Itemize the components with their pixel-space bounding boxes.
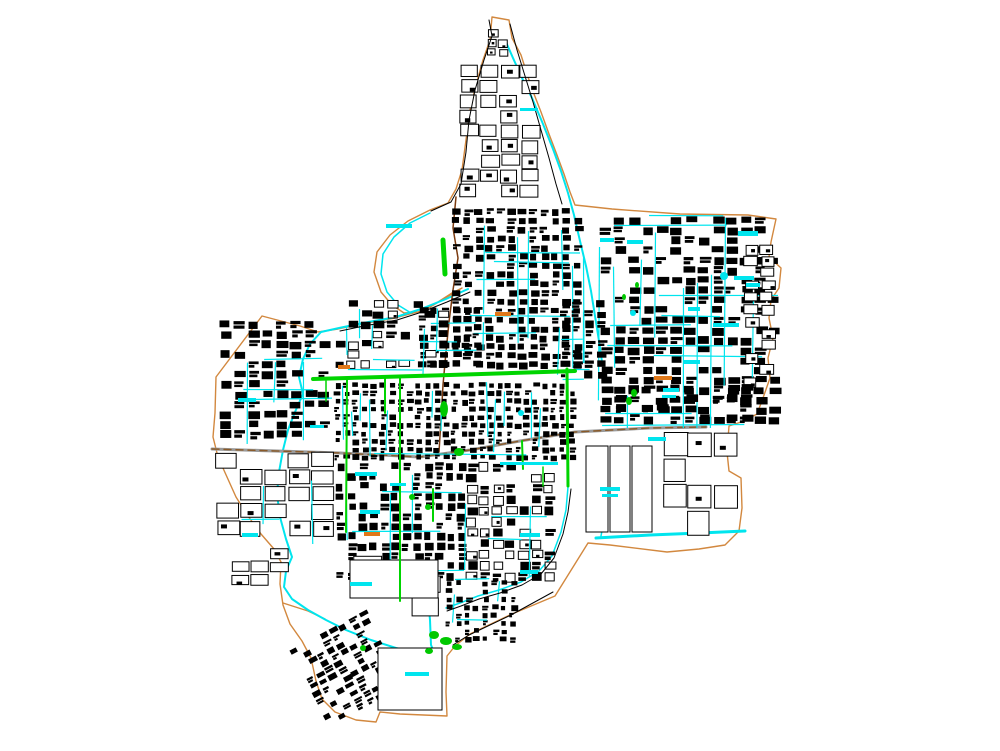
city-block (416, 390, 422, 395)
city-block (403, 514, 411, 517)
water-line (432, 391, 433, 418)
city-block (485, 245, 492, 252)
city-block (430, 337, 434, 339)
city-block (575, 290, 582, 295)
city-block (323, 713, 331, 721)
city-block (529, 361, 538, 367)
label-smear-orange (338, 365, 350, 369)
city-block (417, 408, 424, 411)
city-block (493, 574, 501, 577)
parcel-building (242, 477, 248, 481)
city-block (426, 423, 431, 429)
city-block (336, 512, 343, 515)
water-line (610, 325, 691, 326)
city-block (464, 605, 470, 610)
label-smear-cyan (713, 323, 739, 327)
city-block (250, 436, 257, 439)
city-block (563, 281, 569, 287)
city-block (510, 637, 516, 639)
city-block (370, 661, 377, 666)
city-block (698, 336, 709, 344)
city-parcel (482, 155, 500, 167)
city-block (277, 390, 288, 398)
city-block (468, 561, 477, 570)
city-block (628, 337, 639, 344)
water-line (539, 408, 541, 447)
city-block (380, 440, 385, 445)
city-block (391, 556, 397, 559)
city-block (454, 280, 461, 282)
city-block (349, 504, 356, 510)
city-block (452, 457, 456, 459)
city-map (0, 0, 1000, 751)
parcel-building (502, 45, 505, 48)
city-block (387, 325, 395, 328)
city-block (471, 454, 477, 459)
city-block (643, 246, 652, 249)
large-parcel (632, 446, 652, 532)
city-block (446, 463, 453, 470)
city-block (489, 422, 493, 428)
city-block (487, 212, 491, 214)
parcel-building (766, 371, 771, 374)
city-block (292, 352, 301, 359)
city-block (352, 440, 359, 446)
city-block (600, 416, 611, 422)
city-block (518, 209, 527, 214)
city-parcel (522, 169, 538, 180)
city-block (465, 621, 470, 625)
city-block (574, 245, 582, 247)
city-block (439, 320, 449, 327)
label-smear-cyan (738, 231, 758, 236)
city-block (444, 440, 451, 445)
city-block (600, 406, 610, 412)
city-block (446, 588, 453, 593)
city-block (289, 647, 297, 654)
city-block (475, 290, 482, 296)
city-block (598, 344, 604, 346)
city-block (496, 309, 502, 312)
city-block (435, 399, 440, 403)
city-block (686, 394, 698, 402)
parcel-building (510, 188, 515, 192)
city-block (616, 246, 627, 254)
city-block (630, 331, 637, 334)
city-parcel (492, 507, 501, 514)
city-block (644, 386, 655, 389)
city-block (553, 271, 559, 277)
city-block (545, 501, 552, 504)
city-parcel (412, 598, 438, 616)
city-block (643, 227, 652, 235)
city-block (550, 399, 557, 401)
city-block (249, 421, 258, 427)
city-block (469, 402, 474, 404)
city-block (407, 443, 413, 445)
city-block (658, 277, 670, 284)
city-block (671, 217, 681, 224)
city-parcel (481, 65, 498, 77)
city-parcel (664, 484, 687, 507)
city-block (474, 352, 482, 358)
city-block (276, 326, 281, 329)
city-block (629, 267, 640, 273)
city-parcel (714, 433, 737, 456)
city-block (391, 493, 398, 500)
city-block (249, 371, 259, 374)
city-block (699, 301, 707, 304)
city-block (249, 380, 260, 387)
city-block (264, 411, 275, 418)
city-block (349, 321, 358, 328)
city-block (656, 261, 662, 264)
city-block (562, 321, 570, 329)
city-block (502, 597, 506, 602)
city-block (461, 390, 467, 395)
city-block (487, 391, 494, 396)
city-block (380, 504, 389, 507)
city-block (615, 241, 623, 244)
city-block (643, 250, 648, 253)
city-block (700, 257, 712, 260)
city-block (643, 338, 654, 345)
city-block (553, 354, 561, 359)
city-block (220, 412, 231, 420)
city-parcel (232, 562, 249, 571)
city-block (249, 331, 260, 338)
city-block (519, 218, 526, 224)
city-parcel (312, 471, 334, 484)
city-block (714, 227, 726, 234)
city-block (290, 421, 302, 428)
city-block (585, 352, 592, 355)
city-block (714, 290, 723, 293)
city-block (453, 306, 460, 312)
city-block (479, 406, 486, 410)
city-block (335, 414, 340, 417)
city-block (234, 371, 245, 377)
city-block (403, 524, 411, 531)
city-block (541, 327, 548, 333)
city-block (435, 426, 440, 428)
park-area (454, 448, 464, 456)
city-block (458, 527, 462, 530)
city-block (643, 356, 654, 363)
city-block (323, 686, 330, 691)
city-block (360, 482, 368, 488)
city-block (437, 543, 445, 550)
city-block (220, 430, 231, 438)
city-parcel (374, 301, 383, 308)
city-block (770, 377, 780, 384)
city-parcel (468, 495, 477, 503)
city-block (446, 517, 452, 520)
city-block (574, 249, 579, 251)
city-block (455, 638, 460, 640)
city-block (457, 503, 465, 509)
city-block (629, 357, 640, 360)
city-block (473, 333, 479, 335)
park-area (425, 504, 431, 510)
city-parcel (531, 540, 540, 549)
city-block (656, 326, 668, 329)
city-block (561, 374, 565, 377)
city-parcel (373, 331, 382, 337)
city-parcel (265, 487, 285, 501)
city-block (437, 533, 445, 541)
city-block (319, 678, 327, 685)
city-block (234, 385, 242, 387)
city-block (362, 384, 368, 388)
city-block (435, 493, 442, 499)
city-block (360, 467, 368, 469)
city-block (540, 300, 548, 305)
city-block (478, 416, 485, 420)
city-block (509, 258, 514, 261)
city-block (336, 438, 340, 442)
city-block (545, 496, 555, 500)
city-block (552, 294, 558, 296)
city-block (520, 299, 528, 304)
city-block (552, 318, 558, 321)
city-block (391, 552, 398, 555)
city-block (276, 321, 286, 324)
city-block (584, 371, 592, 379)
label-smear-cyan (520, 533, 540, 537)
city-blocks-layer (216, 30, 782, 727)
city-block (277, 410, 288, 417)
city-block (542, 422, 548, 427)
city-block (644, 417, 653, 425)
city-block (425, 486, 431, 489)
city-block (570, 392, 574, 397)
city-block (474, 343, 481, 348)
label-smear-cyan (390, 483, 406, 486)
label-smear-cyan (405, 672, 429, 676)
city-block (714, 266, 723, 269)
city-block (453, 247, 457, 249)
city-block (573, 354, 581, 357)
city-block (389, 400, 395, 404)
city-block (454, 283, 461, 285)
city-block (496, 399, 501, 403)
city-block (389, 415, 396, 421)
city-block (573, 350, 582, 353)
city-block (476, 218, 483, 223)
city-block (336, 484, 342, 492)
city-block (402, 548, 408, 551)
city-block (483, 623, 486, 625)
city-block (415, 507, 420, 510)
city-block (444, 423, 450, 427)
city-block (543, 416, 548, 421)
city-block (414, 301, 423, 308)
city-block (352, 422, 356, 424)
city-block (671, 236, 680, 244)
city-block (686, 286, 695, 294)
city-block (370, 394, 375, 396)
city-block (425, 311, 436, 318)
city-block (264, 431, 274, 439)
city-block (562, 341, 570, 347)
city-parcel (241, 503, 262, 517)
city-block (529, 262, 538, 267)
city-block (415, 504, 421, 507)
city-block (262, 361, 273, 368)
city-block (656, 351, 663, 354)
city-block (276, 351, 288, 354)
parcel-building (492, 42, 495, 44)
city-block (614, 230, 622, 232)
city-block (353, 431, 359, 433)
city-parcel (506, 551, 514, 559)
city-block (389, 439, 396, 441)
city-block (381, 494, 389, 501)
city-block (435, 483, 442, 486)
city-block (573, 329, 578, 331)
city-block (570, 450, 575, 452)
city-block (473, 636, 480, 641)
city-block (562, 352, 569, 355)
city-block (686, 377, 697, 380)
city-block (444, 382, 449, 387)
city-block (292, 334, 298, 337)
city-block (573, 365, 582, 368)
city-block (456, 580, 461, 585)
city-block (416, 448, 422, 453)
city-block (519, 265, 525, 267)
city-block (465, 326, 472, 331)
city-block (353, 407, 358, 409)
city-block (573, 281, 582, 287)
city-block (390, 383, 395, 388)
city-block (463, 238, 469, 240)
city-block (489, 441, 492, 443)
water-line (655, 232, 656, 337)
city-block (508, 218, 517, 220)
city-block (755, 417, 766, 424)
city-block (381, 523, 388, 526)
city-block (426, 440, 431, 446)
city-block (570, 455, 576, 460)
city-block (531, 249, 539, 252)
city-block (656, 306, 668, 312)
city-block (487, 299, 495, 301)
city-block (336, 572, 343, 575)
city-parcel (715, 486, 738, 509)
park-area (631, 389, 637, 397)
label-smear-cyan (746, 283, 760, 287)
city-block (498, 383, 503, 389)
city-block (469, 399, 475, 401)
city-block (502, 630, 507, 634)
city-block (525, 393, 529, 395)
city-block (457, 514, 466, 522)
city-block (601, 271, 610, 274)
city-block (426, 472, 432, 478)
city-parcel (522, 141, 538, 154)
city-block (656, 380, 663, 383)
city-block (496, 442, 499, 444)
city-block (305, 344, 311, 347)
city-block (463, 316, 471, 322)
water-line (343, 386, 344, 440)
city-block (480, 447, 486, 449)
water-line (485, 253, 580, 254)
city-block (379, 455, 384, 461)
city-block (336, 341, 346, 348)
large-parcel (378, 648, 442, 710)
city-block (402, 544, 408, 547)
city-block (469, 432, 475, 437)
park-area (626, 397, 632, 405)
city-block (250, 432, 260, 435)
city-block (433, 383, 439, 388)
city-block (249, 361, 259, 364)
city-block (391, 524, 399, 531)
city-block (575, 344, 583, 350)
city-block (362, 407, 367, 411)
city-block (343, 386, 346, 388)
city-block (389, 447, 395, 452)
city-block (481, 572, 490, 575)
city-block (714, 317, 724, 320)
city-block (465, 209, 474, 212)
city-block (292, 431, 302, 437)
city-block (363, 394, 368, 396)
label-smear-cyan (627, 240, 643, 244)
city-block (334, 407, 339, 409)
city-block (754, 278, 765, 281)
city-block (435, 462, 444, 465)
city-block (475, 317, 482, 322)
city-block (552, 209, 558, 216)
city-block (509, 290, 517, 296)
city-block (476, 255, 484, 262)
city-block (425, 447, 432, 451)
city-block (335, 455, 339, 457)
city-block (562, 356, 568, 359)
city-block (686, 406, 697, 413)
city-block (362, 310, 372, 316)
city-block (529, 209, 537, 211)
city-block (498, 344, 505, 350)
city-block (642, 405, 653, 412)
city-block (585, 321, 593, 329)
city-parcel (501, 111, 517, 123)
city-block (249, 405, 255, 408)
city-block (601, 267, 611, 270)
city-block (712, 246, 724, 252)
city-block (672, 356, 682, 362)
green-street (443, 240, 445, 274)
city-parcel (461, 124, 479, 136)
water-line (640, 260, 642, 326)
city-block (452, 407, 456, 412)
city-parcel (760, 292, 772, 301)
city-parcel (479, 462, 488, 471)
city-block (553, 280, 560, 282)
label-smear-orange (364, 532, 380, 536)
city-block (501, 606, 505, 610)
city-block (453, 326, 460, 332)
city-block (540, 227, 547, 230)
city-block (403, 517, 409, 520)
parcel-building (506, 99, 512, 103)
city-block (408, 447, 414, 451)
parcel-building (696, 441, 702, 445)
